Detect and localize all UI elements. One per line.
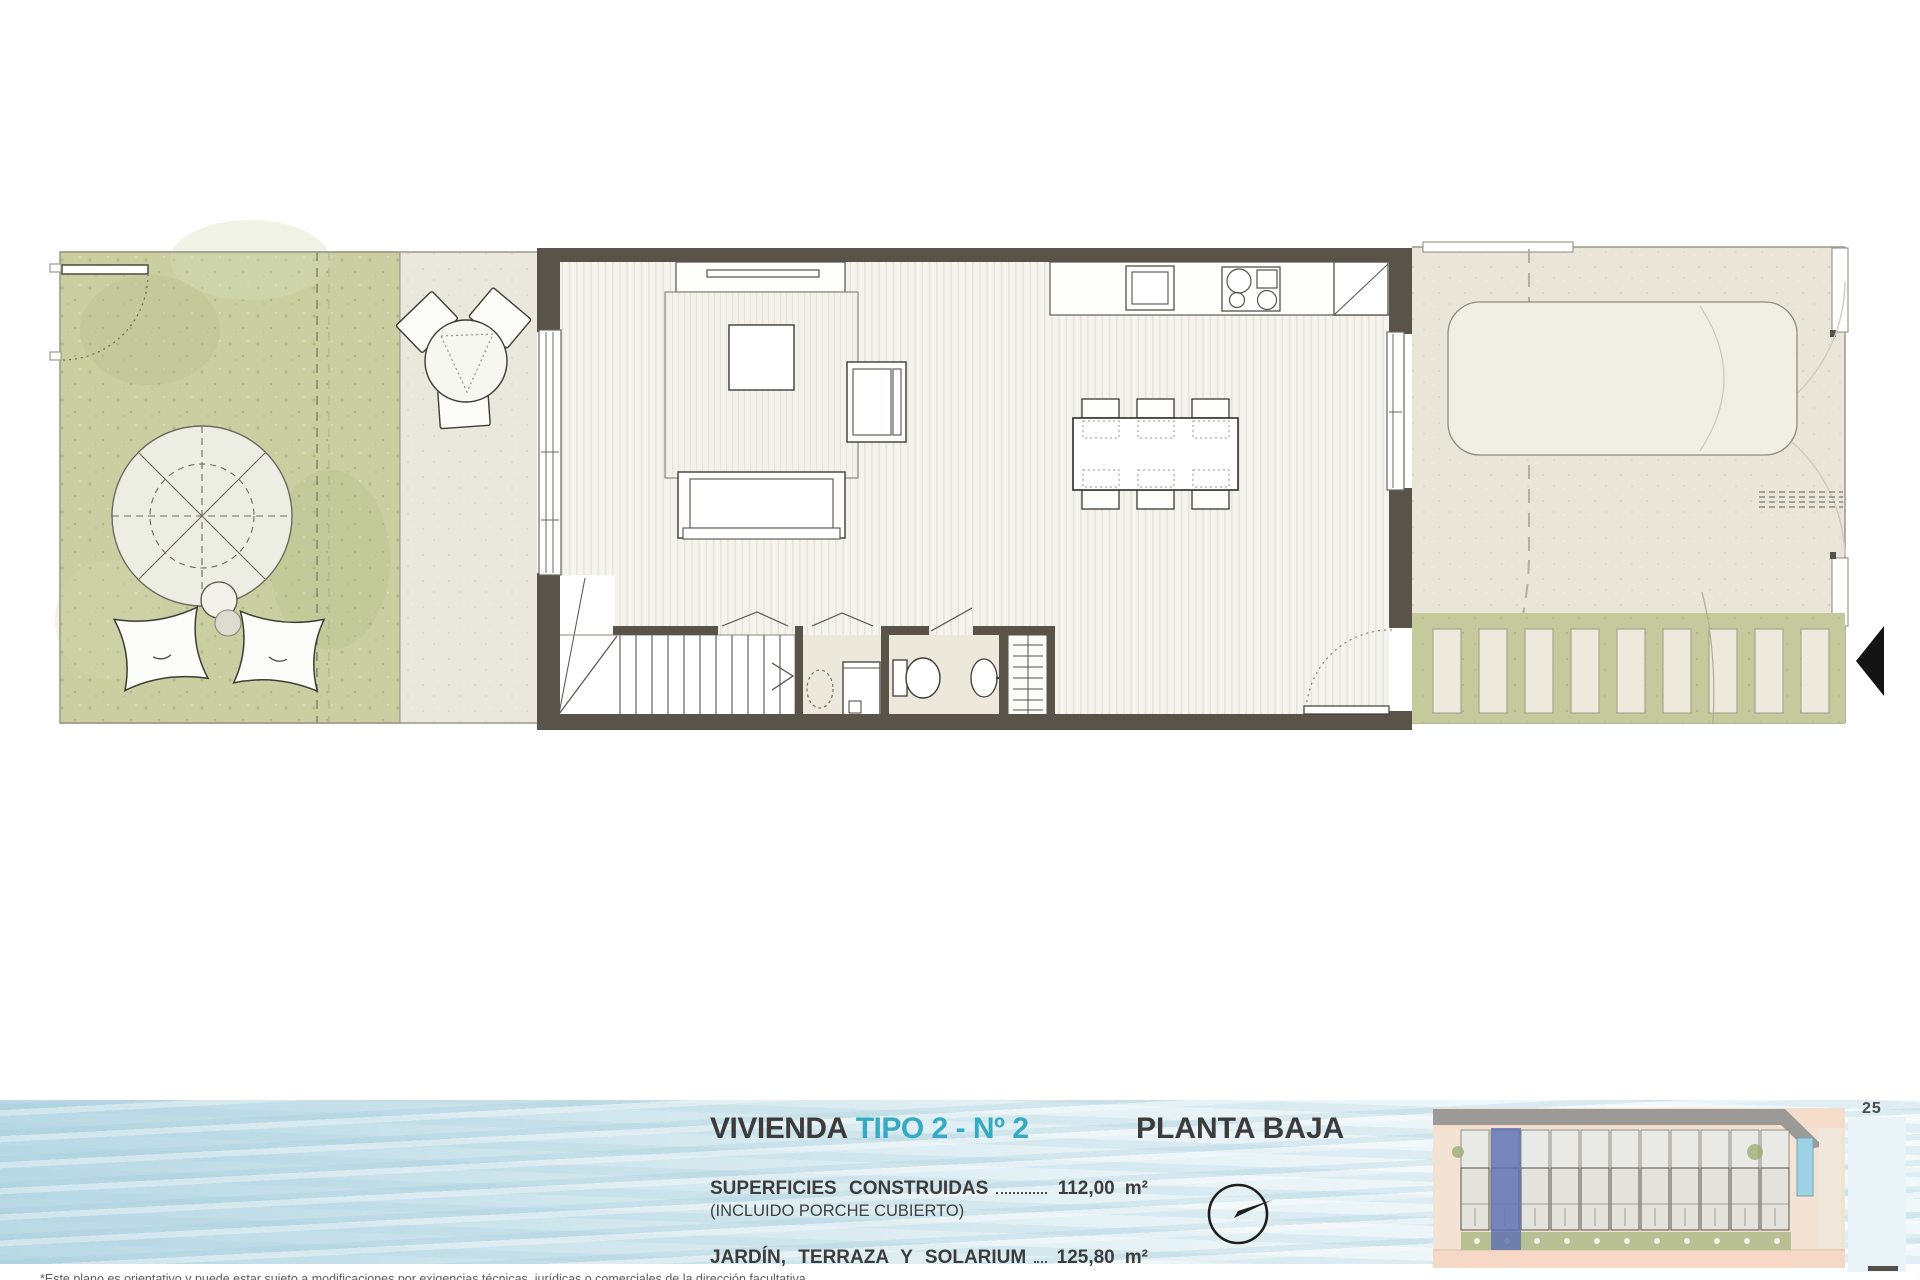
dining-table — [1073, 418, 1238, 490]
dotted-leader — [1034, 1260, 1047, 1263]
area-value: 112,00 — [1055, 1178, 1115, 1200]
area-value: 125,80 — [1055, 1247, 1115, 1269]
area-unit: m² — [1125, 1178, 1148, 1200]
area-label: SUPERFICIES CONSTRUIDAS — [710, 1178, 988, 1200]
site-pool — [1797, 1138, 1813, 1196]
area-row-built: SUPERFICIES CONSTRUIDAS 112,00 m² — [710, 1178, 1148, 1200]
east-window — [1387, 332, 1404, 490]
west-window — [539, 330, 561, 575]
area-unit: m² — [1125, 1247, 1148, 1269]
floor-plan-drawing — [0, 0, 1920, 1280]
washing-machine — [843, 662, 880, 715]
title-accent: TIPO 2 - Nº 2 — [856, 1112, 1029, 1145]
site-road-bottom — [1433, 1250, 1845, 1268]
page-title: VIVIENDATIPO 2 - Nº 2 — [710, 1112, 1029, 1146]
kitchen-sink — [1126, 266, 1174, 310]
site-road-top — [1433, 1109, 1785, 1125]
site-tree — [1747, 1144, 1763, 1160]
armchair — [847, 362, 906, 442]
area-note: (INCLUIDO PORCHE CUBIERTO) — [710, 1202, 1148, 1221]
site-plan-map — [1433, 1108, 1845, 1268]
footer-right-strip — [1848, 1117, 1906, 1272]
plan-name: PLANTA BAJA — [1136, 1112, 1344, 1146]
fridge — [1334, 262, 1388, 315]
north-compass-icon — [1203, 1177, 1275, 1249]
car-outline — [1448, 302, 1797, 455]
tv-unit — [676, 262, 845, 292]
brochure-page: VIVIENDATIPO 2 - Nº 2 PLANTA BAJA SUPERF… — [0, 0, 1920, 1280]
area-table: SUPERFICIES CONSTRUIDAS 112,00 m² (INCLU… — [710, 1178, 1148, 1269]
area-label: JARDÍN, TERRAZA Y SOLARIUM — [710, 1247, 1026, 1269]
installation-shaft — [1008, 635, 1047, 715]
dotted-leader — [996, 1191, 1046, 1194]
parasol — [112, 426, 292, 606]
sofa — [678, 472, 845, 539]
coffee-table — [729, 325, 794, 390]
site-tree — [1452, 1146, 1464, 1158]
area-row-garden: JARDÍN, TERRAZA Y SOLARIUM 125,80 m² — [710, 1247, 1148, 1269]
cooktop — [1222, 267, 1280, 311]
site-highlighted-unit — [1491, 1128, 1521, 1250]
footer-right-dash — [1868, 1266, 1898, 1271]
entrance-arrow-icon — [1856, 626, 1884, 696]
page-number: 25 — [1862, 1100, 1882, 1117]
disclaimer-text: *Este plano es orientativo y puede estar… — [40, 1272, 1440, 1280]
title-main: VIVIENDA — [710, 1112, 848, 1145]
toilet — [893, 658, 940, 698]
